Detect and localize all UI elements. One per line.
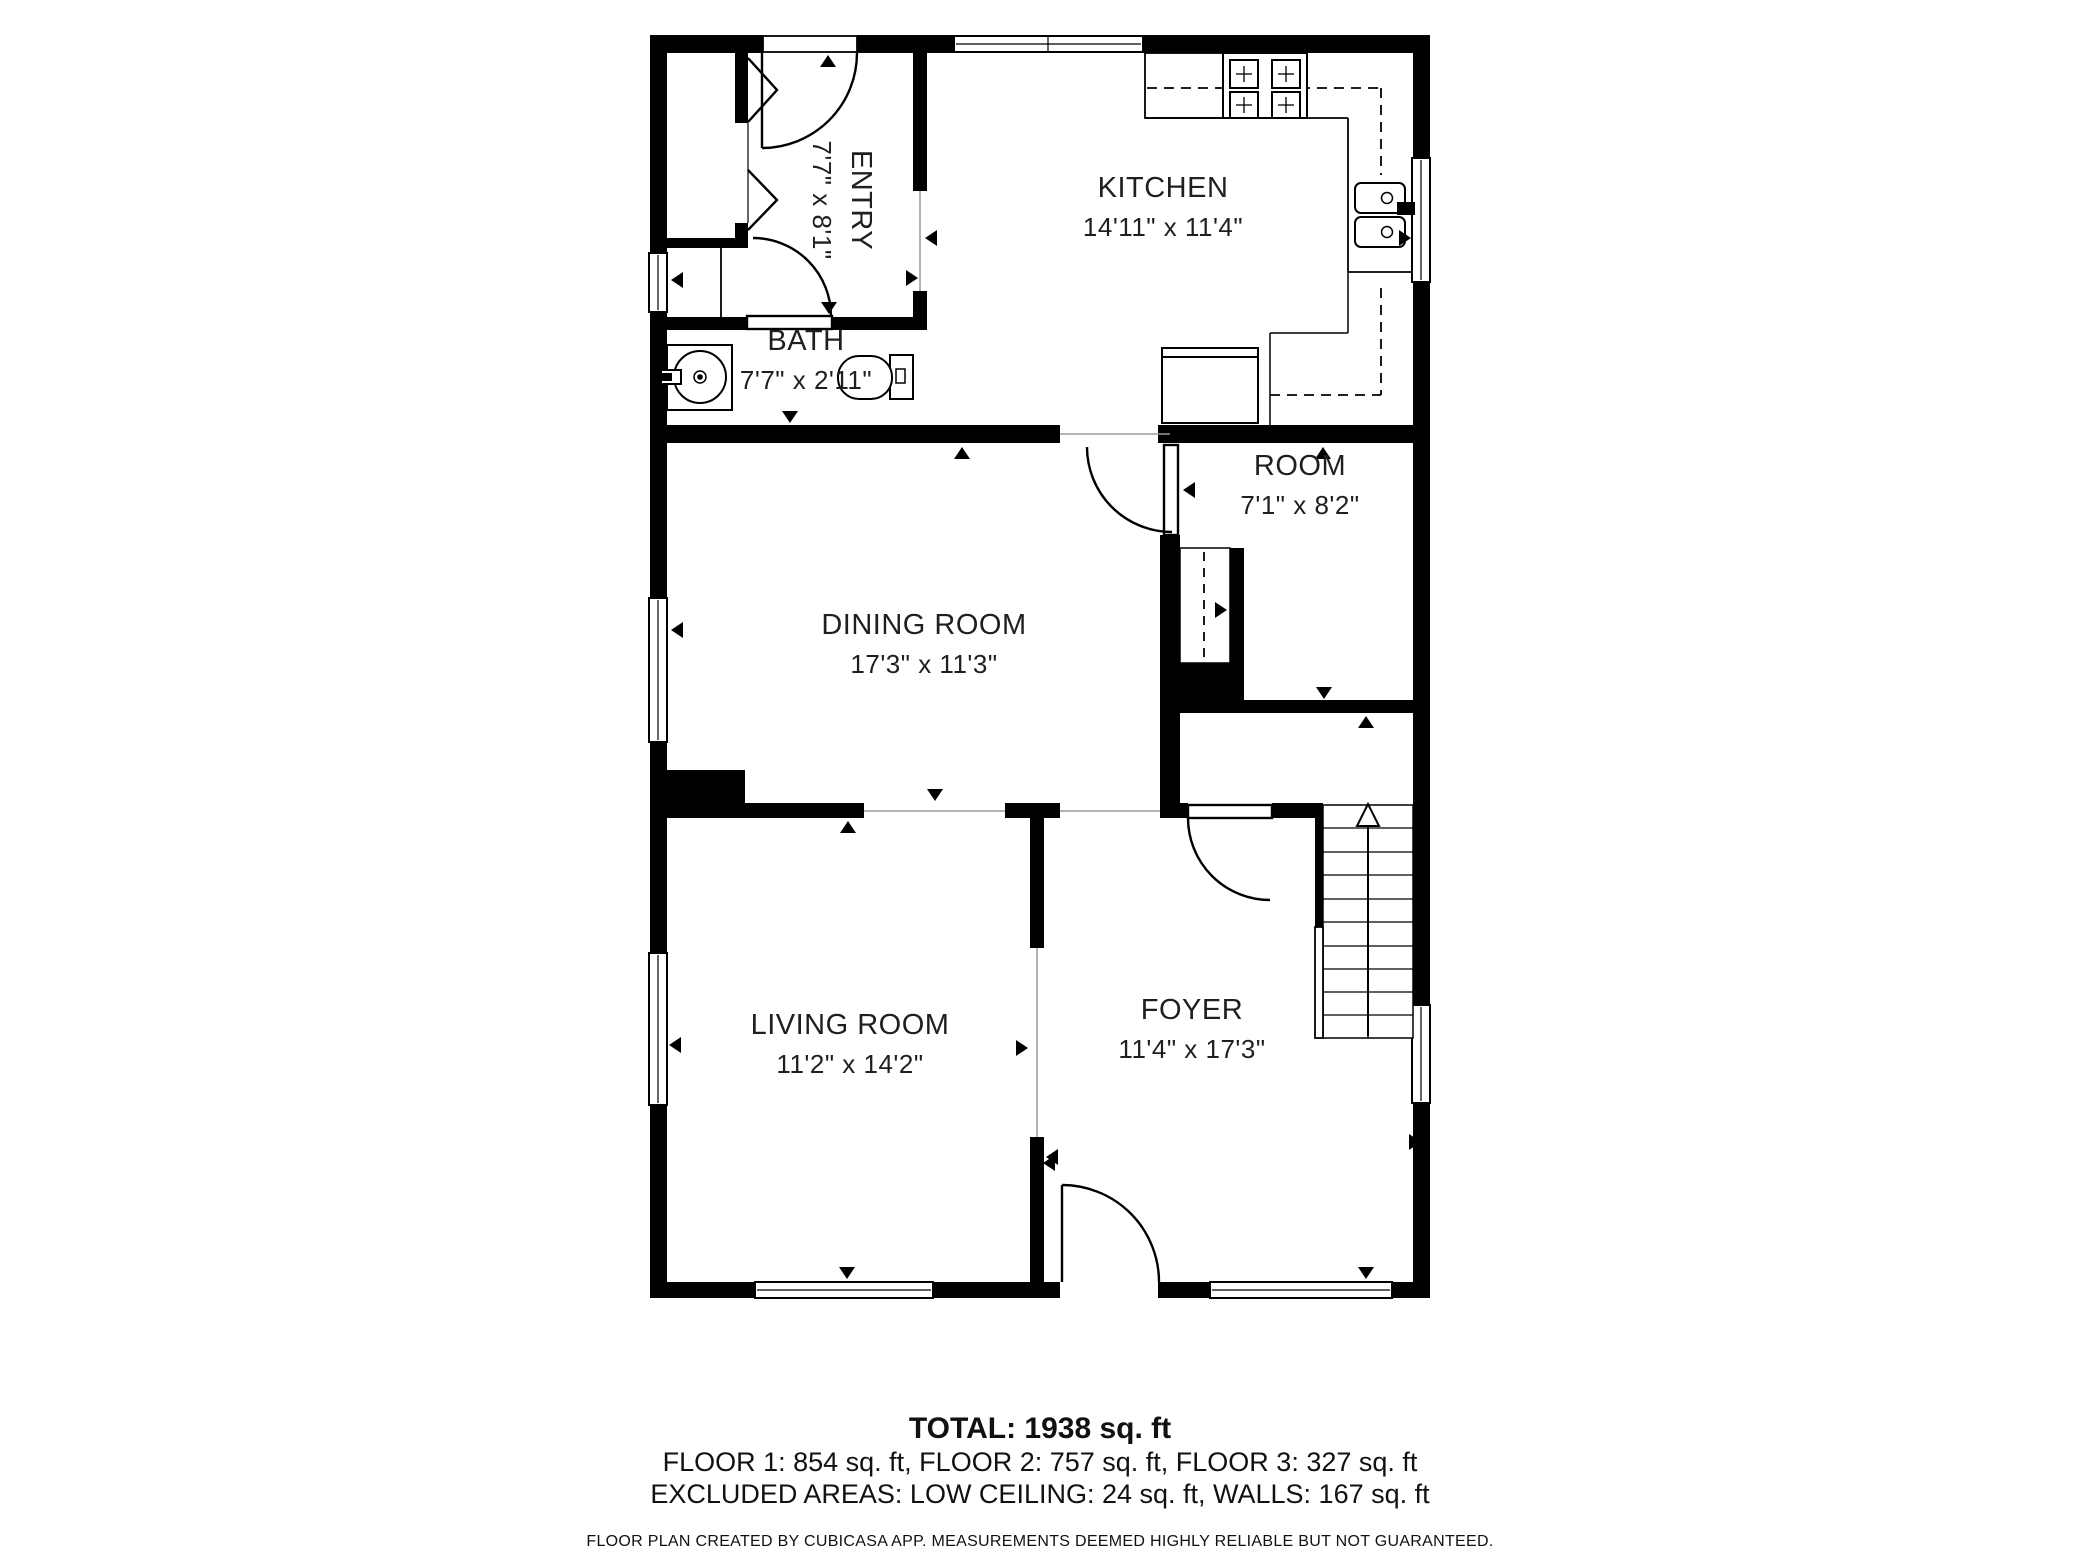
window-icon	[649, 598, 667, 742]
window-icon	[755, 1282, 933, 1298]
marker-left	[669, 1037, 681, 1053]
room-label-bath: BATH 7'7" x 2'11"	[740, 322, 872, 400]
marker-left	[1183, 482, 1195, 498]
room-label-living-room: LIVING ROOM 11'2" x 14'2"	[751, 1006, 950, 1084]
stairs	[1315, 804, 1413, 1038]
marker-left	[925, 230, 937, 246]
marker-down	[927, 789, 943, 801]
marker-down	[782, 411, 798, 423]
room-label-entry: ENTRY 7'7" x 8'1"	[802, 140, 880, 259]
marker-down	[1316, 687, 1332, 699]
marker-right	[1016, 1040, 1028, 1056]
room-label-room: ROOM 7'1" x 8'2"	[1240, 447, 1359, 525]
room-label-dining-room: DINING ROOM 17'3" x 11'3"	[821, 606, 1026, 684]
window-icon	[1210, 1282, 1392, 1298]
marker-right	[1215, 602, 1227, 618]
excluded-areas: EXCLUDED AREAS: LOW CEILING: 24 sq. ft, …	[0, 1478, 2080, 1510]
counter	[1145, 53, 1223, 118]
disclaimer: FLOOR PLAN CREATED BY CUBICASA APP. MEAS…	[0, 1532, 2080, 1552]
bath-sink-icon	[661, 345, 732, 410]
kitchen-dining-door-icon	[1087, 445, 1178, 535]
foyer-hall-door-icon	[1188, 805, 1272, 900]
marker-up	[954, 447, 970, 459]
total-area: TOTAL: 1938 sq. ft	[0, 1412, 2080, 1446]
marker-left	[671, 272, 683, 288]
marker-down	[821, 302, 837, 314]
closet-bifold-icon	[748, 170, 777, 230]
window-icon	[1412, 1005, 1430, 1103]
floorplan-page: ENTRY 7'7" x 8'1" BATH 7'7" x 2'11" KITC…	[0, 0, 2080, 1560]
floorplan-drawing	[0, 0, 2080, 1560]
opening-markers	[669, 55, 1421, 1279]
marker-up	[840, 821, 856, 833]
marker-up	[820, 55, 836, 67]
inner-walls	[650, 53, 1430, 1282]
window-icon	[954, 36, 1143, 52]
floor-areas: FLOOR 1: 854 sq. ft, FLOOR 2: 757 sq. ft…	[0, 1446, 2080, 1478]
stove-icon	[1223, 53, 1307, 118]
marker-down	[1358, 1267, 1374, 1279]
marker-down	[839, 1267, 855, 1279]
area-summary: TOTAL: 1938 sq. ft FLOOR 1: 854 sq. ft, …	[0, 1412, 2080, 1552]
foyer-entrance-door-icon	[1062, 1185, 1159, 1282]
marker-left	[671, 622, 683, 638]
marker-up	[1358, 716, 1374, 728]
outer-walls	[650, 35, 1430, 1298]
fridge-icon	[1162, 348, 1258, 423]
room-closet	[1180, 548, 1230, 663]
room-label-kitchen: KITCHEN 14'11" x 11'4"	[1083, 169, 1243, 247]
window-icon	[649, 953, 667, 1105]
stair-rail	[1315, 927, 1323, 1038]
windows	[649, 36, 1430, 1298]
room-label-foyer: FOYER 11'4" x 17'3"	[1118, 991, 1265, 1069]
window-icon	[1412, 158, 1430, 282]
entry-closet	[721, 58, 777, 317]
marker-right	[906, 270, 918, 286]
window-icon	[649, 253, 667, 312]
